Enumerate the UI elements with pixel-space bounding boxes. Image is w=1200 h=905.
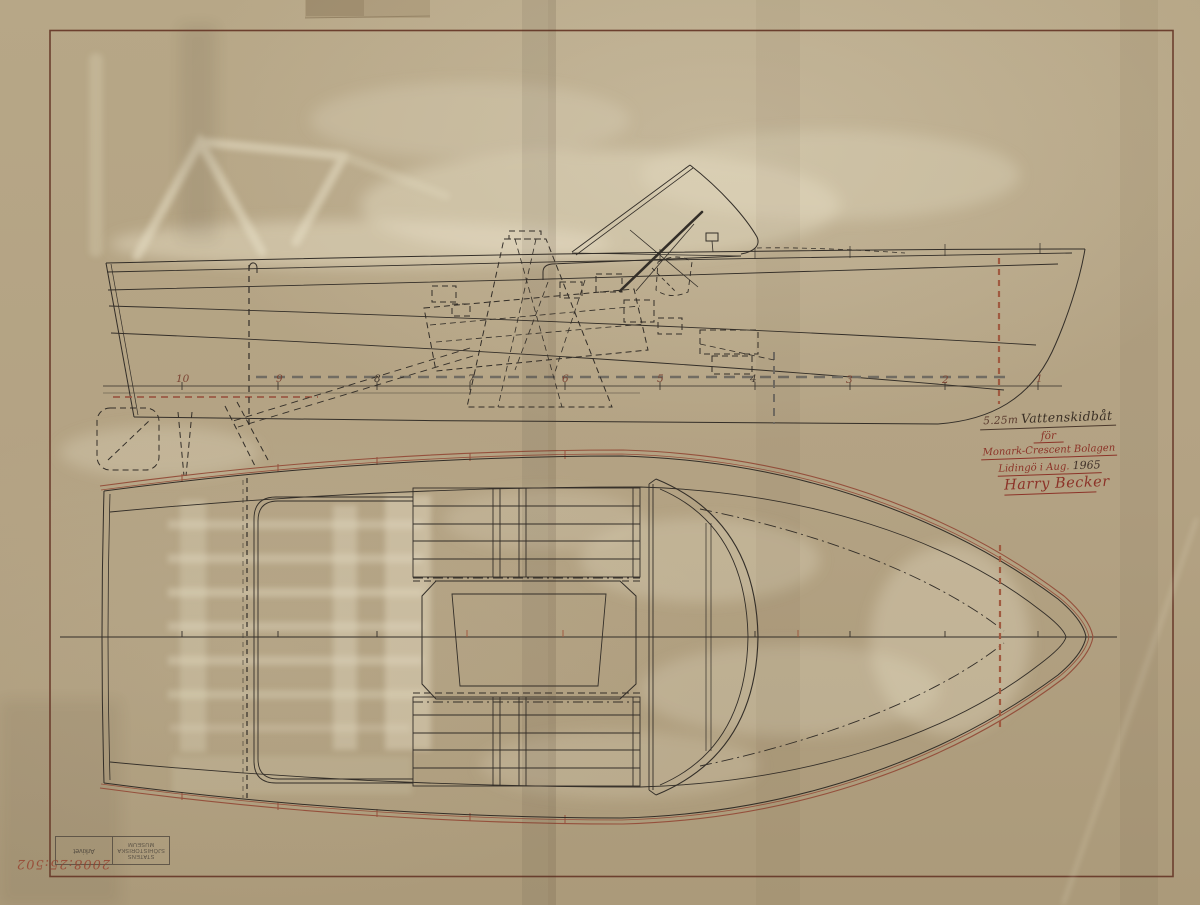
station-label-9: 9 bbox=[276, 373, 283, 385]
station-label-6: 6 bbox=[562, 373, 569, 385]
prop-shaft-dashed bbox=[233, 348, 473, 427]
boat-type-label: Vattenskidbåt bbox=[1021, 408, 1113, 426]
drawing-sheet: 10 9 8 7 6 5 4 3 2 1 bbox=[0, 0, 1200, 905]
museum-line2: SJÖHISTORISKA bbox=[117, 848, 165, 854]
station-label-2: 2 bbox=[941, 374, 949, 386]
station-label-10: 10 bbox=[176, 373, 190, 385]
transom-inner-line bbox=[111, 264, 138, 415]
transom-line bbox=[106, 263, 134, 417]
drawing-title: 5.25mVattenskidbåt bbox=[980, 410, 1116, 430]
stem-profile bbox=[938, 249, 1085, 424]
title-block: 5.25mVattenskidbåt för Monark-Crescent B… bbox=[980, 410, 1119, 496]
archive-number: 2008:25:502 bbox=[0, 856, 126, 871]
station-label-1: 1 bbox=[1036, 373, 1043, 385]
place-label: Lidingö i Aug. bbox=[998, 461, 1069, 474]
deck-seam-line bbox=[108, 264, 1058, 290]
station-label-8: 8 bbox=[374, 373, 381, 385]
museum-line3: MUSEUM bbox=[128, 842, 154, 848]
station-label-5: 5 bbox=[657, 373, 664, 385]
station-labels: 10 9 8 7 6 5 4 3 2 1 bbox=[176, 373, 1043, 386]
lower-chine-line bbox=[111, 333, 1004, 390]
year-label: 1965 bbox=[1072, 458, 1100, 472]
length-label: 5.25m bbox=[983, 414, 1018, 427]
window-ghost bbox=[168, 495, 431, 794]
tape-patch bbox=[305, 0, 430, 18]
station-label-3: 3 bbox=[846, 374, 853, 386]
station-label-7: 7 bbox=[468, 373, 475, 385]
for-label: för bbox=[1033, 430, 1063, 444]
signature: Harry Becker bbox=[1004, 475, 1097, 495]
museum-line1: STATENS bbox=[128, 854, 155, 860]
paper-ghost-marks bbox=[0, 25, 1030, 905]
station-label-4: 4 bbox=[749, 373, 757, 385]
